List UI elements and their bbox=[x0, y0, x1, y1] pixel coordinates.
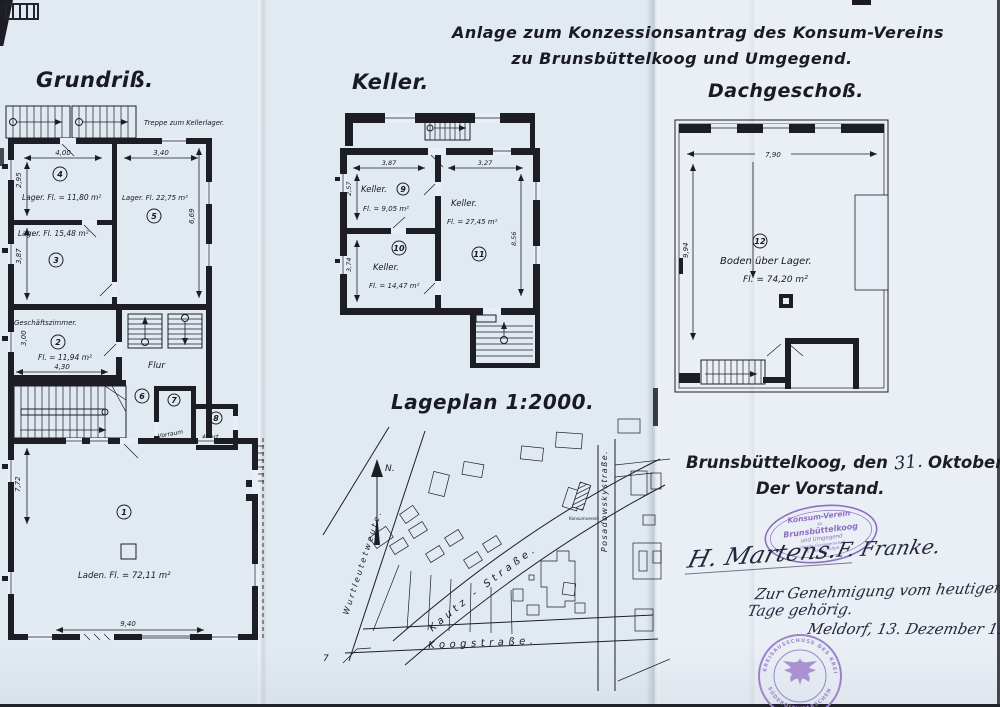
street-label-wurtleute: Wurtleutetweute. bbox=[341, 509, 384, 616]
keller-main-walls bbox=[335, 148, 540, 315]
place-date-rest: Oktober 1932. bbox=[928, 453, 1000, 472]
document-title-line2: zu Brunsbüttelkoog und Umgegend. bbox=[452, 46, 912, 72]
grundriss-plan-drawing: Treppe zum Kellerlager. 4,00 2,95 bbox=[2, 94, 264, 670]
dach-room-12: 12 Boden über Lager. Fl. = 74,20 m² bbox=[720, 234, 812, 285]
document-title: Anlage zum Konzessionsantrag des Konsum-… bbox=[452, 20, 912, 71]
place-date-prefix: Brunsbüttelkoog, den bbox=[686, 453, 888, 472]
dim-label: 2,95 bbox=[15, 172, 23, 188]
map-corner-mark: 7 bbox=[323, 648, 371, 664]
eagle-icon bbox=[783, 658, 817, 685]
room-3: Lager. Fl. 15,48 m² 3 3,87 bbox=[15, 228, 89, 300]
svg-text:SÜDERDITHMARSCHEN: SÜDERDITHMARSCHEN bbox=[766, 686, 833, 707]
dim-label: 7,90 bbox=[765, 151, 781, 159]
konsum-building: Konsumverein bbox=[562, 482, 599, 521]
date-day-handwritten: 31. bbox=[893, 451, 924, 475]
room-area-label: Fl. = 9,05 m² bbox=[363, 205, 409, 213]
dim-label: 8,56 bbox=[510, 232, 518, 246]
dim-label: 3,87 bbox=[382, 159, 397, 167]
keller-vestibule-walls bbox=[345, 113, 535, 148]
room-label: Keller. bbox=[361, 185, 387, 195]
room-area-label: Fl. = 74,20 m² bbox=[743, 275, 808, 285]
room-label: Keller. bbox=[451, 199, 477, 209]
room-number: 9 bbox=[400, 185, 406, 194]
konsum-building-label: Konsumverein bbox=[569, 516, 599, 521]
room-label: Geschäftszimmer. bbox=[14, 319, 77, 327]
room-2-geschaeftszimmer: Geschäftszimmer. 2 Fl. = 11,94 m² 4,30 3… bbox=[2, 310, 122, 380]
keller-room-11: 3,27 Keller. Fl. = 27,45 m² 11 8,56 bbox=[447, 159, 523, 296]
corner-number-label: 7 bbox=[323, 654, 329, 664]
room-number: 2 bbox=[55, 338, 61, 347]
svg-text:Kautz - Straße.: Kautz - Straße. bbox=[427, 543, 540, 634]
room-number: 11 bbox=[473, 250, 484, 259]
map-buildings bbox=[369, 419, 661, 634]
room-number: 3 bbox=[53, 256, 59, 265]
upper-block-walls bbox=[2, 138, 212, 310]
street-label-koog: Koogstraße. bbox=[428, 636, 538, 652]
dim-label: 3,87 bbox=[15, 248, 23, 264]
room-number: 6 bbox=[139, 392, 145, 401]
approval-note-line2: Tage gehörig. bbox=[746, 600, 854, 620]
round-stamp: KREISAUSSCHUSS DES KREISES SÜDERDITHMARS… bbox=[740, 631, 862, 707]
dim-label: 3,40 bbox=[153, 149, 169, 157]
keller-plan-drawing: 3,87 2,57 Keller. 9 Fl. = 9,05 m² 3,27 K… bbox=[333, 96, 565, 372]
north-label: N. bbox=[385, 464, 395, 474]
street-label-posadowsky: Posadowskystraße. bbox=[600, 450, 609, 552]
dim-label: 3,00 bbox=[20, 330, 28, 346]
room-number: 4 bbox=[56, 170, 63, 179]
dim-label: 3,27 bbox=[478, 159, 493, 167]
scan-edge-tick bbox=[852, 0, 871, 5]
room-label: Laden. Fl. = 72,11 m² bbox=[78, 571, 171, 581]
signature-right: F. Franke. bbox=[835, 534, 944, 562]
dach-interior bbox=[679, 294, 859, 389]
room-label: Boden über Lager. bbox=[720, 256, 812, 267]
room-number: 1 bbox=[121, 508, 127, 517]
room-label: Flur bbox=[148, 361, 166, 371]
room-number: 5 bbox=[151, 212, 157, 221]
room-area-label: Fl. = 14,47 m² bbox=[369, 282, 420, 290]
dim-label: 3,74 bbox=[345, 258, 353, 272]
room-7-vorraum: 7 Vorraum bbox=[154, 386, 196, 444]
main-staircase-icon bbox=[8, 380, 126, 438]
lageplan-map-drawing: N. Kautz - Straße. Koogstraße. Posadowsk… bbox=[313, 413, 670, 695]
room-area-label: Fl. = 27,45 m² bbox=[447, 218, 498, 226]
dim-label: 4,30 bbox=[54, 363, 70, 371]
exterior-stairs-icon bbox=[6, 106, 136, 138]
room-4: 4,00 2,95 4 Lager. Fl. = 11,80 m² bbox=[15, 149, 102, 216]
scanned-document-page: Anlage zum Konzessionsantrag des Konsum-… bbox=[0, 0, 1000, 707]
vorstand-line: Der Vorstand. bbox=[756, 479, 884, 498]
dim-label: 9,94 bbox=[682, 242, 690, 258]
room-number: 8 bbox=[213, 414, 219, 423]
keller-room-10: 10 Keller. Fl. = 14,47 m² 3,74 bbox=[345, 240, 420, 302]
room-area-label: Fl. = 11,94 m² bbox=[38, 353, 92, 362]
room-6-flur: Flur 6 bbox=[128, 310, 212, 444]
room-label: Lager. Fl. = 11,80 m² bbox=[22, 193, 101, 202]
dachgeschoss-plan-drawing: 7,90 9,94 12 Boden über Lager. Fl. = 74,… bbox=[663, 108, 903, 400]
lageplan-heading: Lageplan 1:2000. bbox=[391, 390, 594, 414]
dachgeschoss-heading: Dachgeschoß. bbox=[708, 80, 864, 102]
room-number: 12 bbox=[754, 237, 766, 246]
keller-room-9: 3,87 2,57 Keller. 9 Fl. = 9,05 m² bbox=[345, 159, 425, 220]
dim-label: 9,40 bbox=[120, 620, 136, 628]
room-label: Keller. bbox=[373, 263, 399, 273]
round-stamp-arc-bottom: SÜDERDITHMARSCHEN bbox=[766, 686, 833, 707]
place-date-line: Brunsbüttelkoog, den 31. Oktober 1932. bbox=[686, 452, 1000, 473]
room-label: Lager. Fl. 22,75 m² bbox=[122, 194, 188, 202]
keller-heading: Keller. bbox=[352, 70, 429, 94]
stairs-note-label: Treppe zum Kellerlager. bbox=[144, 119, 224, 127]
scan-edge-ladder-mark bbox=[5, 3, 39, 20]
dim-label: 4,00 bbox=[55, 149, 71, 157]
grundriss-heading: Grundriß. bbox=[36, 68, 154, 92]
street-label-kautz: Kautz - Straße. bbox=[427, 543, 540, 634]
room-number: 7 bbox=[171, 396, 177, 405]
dim-label: 6,69 bbox=[188, 208, 196, 224]
room-5: 3,40 6,69 Lager. Fl. 22,75 m² 5 bbox=[122, 148, 199, 298]
room-label: Lager. Fl. 15,48 m² bbox=[18, 229, 89, 238]
dim-label: 7,72 bbox=[14, 476, 22, 492]
dim-label: 2,57 bbox=[345, 181, 353, 196]
dach-dimensions: 7,90 9,94 bbox=[682, 151, 877, 340]
room-number: 10 bbox=[393, 244, 405, 253]
document-title-line1: Anlage zum Konzessionsantrag des Konsum-… bbox=[452, 20, 912, 46]
room-1-laden: 1 Laden. Fl. = 72,11 m² 9,40 7,72 bbox=[2, 438, 264, 640]
keller-stair-annex bbox=[470, 315, 540, 368]
